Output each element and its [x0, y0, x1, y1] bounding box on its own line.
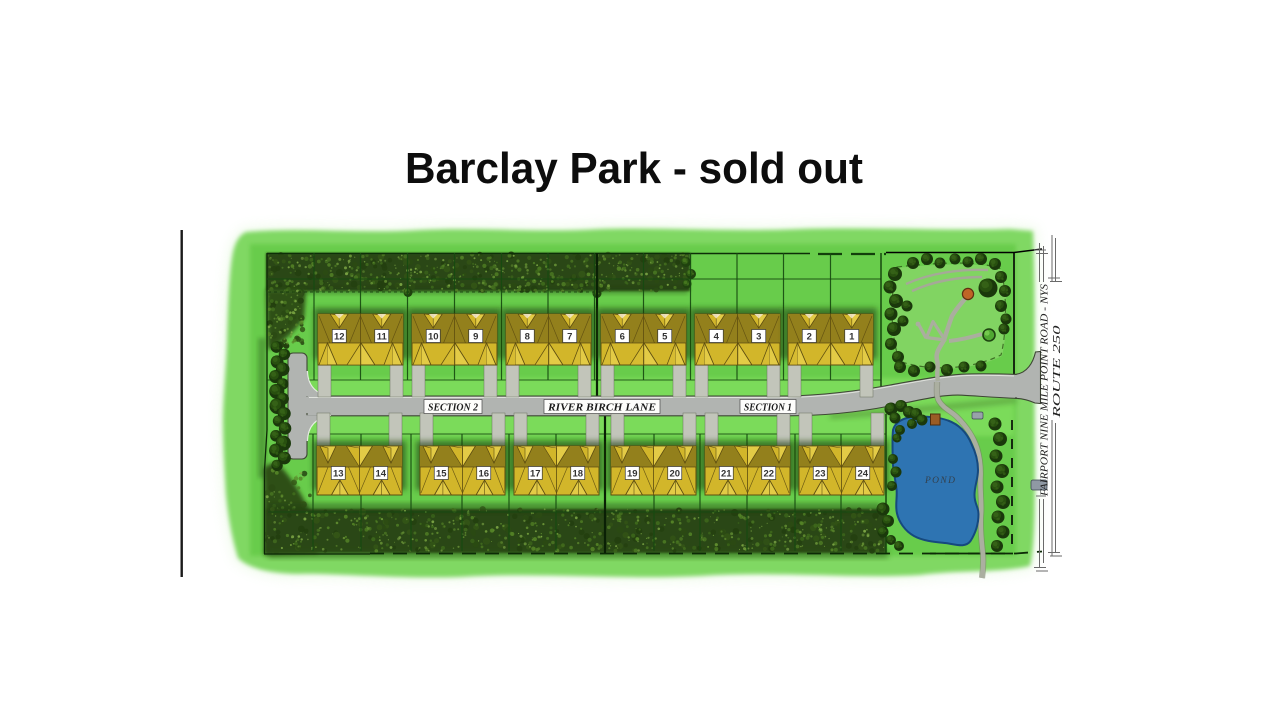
svg-text:2: 2 [807, 332, 812, 343]
svg-text:15: 15 [436, 469, 447, 480]
svg-text:6: 6 [620, 332, 625, 343]
svg-text:5: 5 [662, 332, 668, 343]
svg-text:11: 11 [377, 332, 388, 343]
svg-text:10: 10 [428, 332, 439, 343]
svg-text:SECTION 1: SECTION 1 [744, 401, 792, 413]
svg-text:9: 9 [473, 332, 478, 343]
svg-text:7: 7 [567, 332, 572, 343]
svg-text:FAIRPORT NINE MILE POINT ROAD: FAIRPORT NINE MILE POINT ROAD - NYS [1040, 284, 1051, 497]
svg-text:19: 19 [627, 469, 638, 480]
svg-text:21: 21 [721, 469, 732, 480]
svg-text:SECTION 2: SECTION 2 [428, 401, 478, 413]
svg-text:Barclay Park - sold out: Barclay Park - sold out [405, 144, 863, 193]
svg-text:14: 14 [375, 469, 386, 480]
svg-text:8: 8 [525, 332, 530, 343]
svg-text:18: 18 [572, 469, 583, 480]
svg-text:22: 22 [763, 469, 774, 480]
svg-text:POND: POND [924, 476, 955, 486]
svg-text:3: 3 [756, 332, 761, 343]
svg-text:24: 24 [857, 469, 868, 480]
svg-text:23: 23 [815, 469, 826, 480]
svg-text:ROUTE 250: ROUTE 250 [1052, 326, 1063, 420]
svg-text:12: 12 [334, 332, 345, 343]
svg-text:1: 1 [849, 332, 855, 343]
svg-text:13: 13 [333, 469, 344, 480]
svg-text:4: 4 [714, 332, 720, 343]
svg-text:RIVER BIRCH LANE: RIVER BIRCH LANE [547, 401, 656, 413]
svg-text:20: 20 [669, 469, 680, 480]
svg-text:17: 17 [530, 469, 541, 480]
svg-text:16: 16 [478, 469, 489, 480]
